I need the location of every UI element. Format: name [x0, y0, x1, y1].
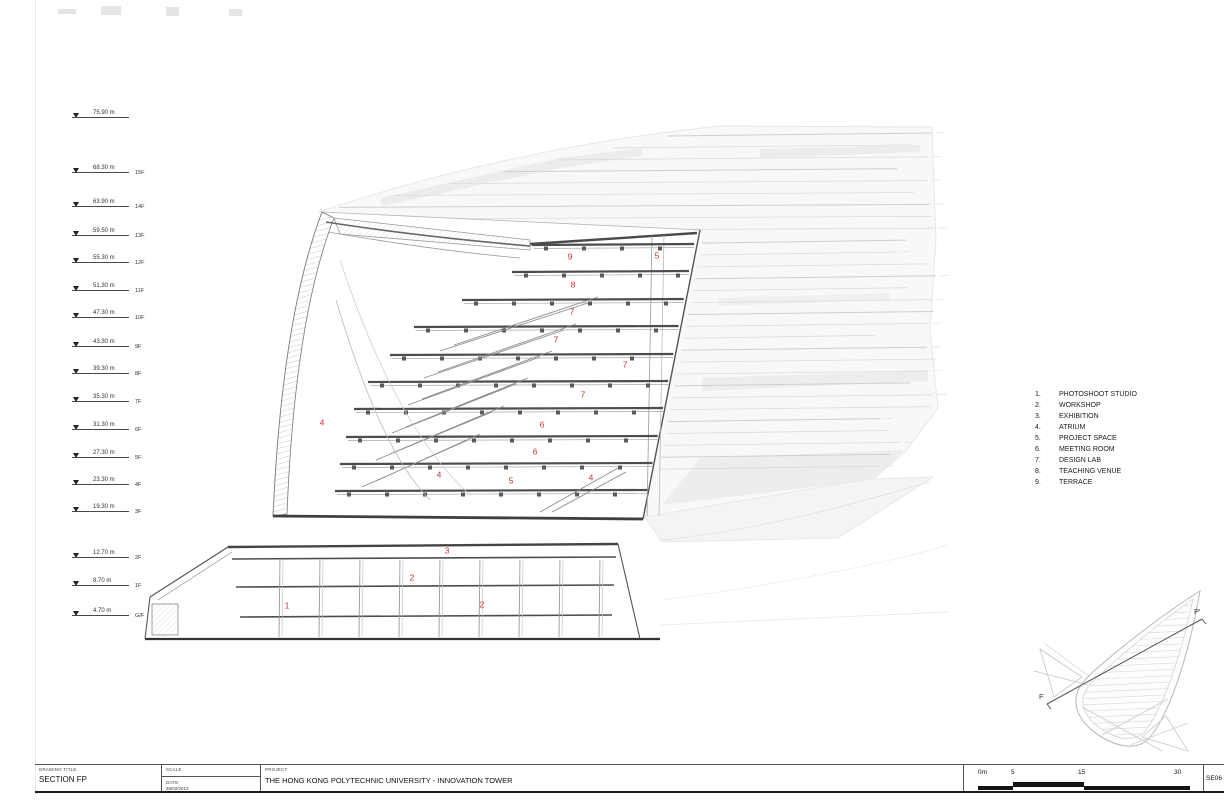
section-line-start-label: F	[1039, 692, 1044, 701]
legend-item-label: TEACHING VENUE	[1059, 466, 1121, 477]
legend-item-label: ATRIUM	[1059, 422, 1085, 433]
level-marker: 27.30 m5F	[72, 448, 129, 458]
level-marker: 51.30 m11F	[72, 281, 129, 291]
scale-bar-labels: 0m51530	[978, 769, 1192, 777]
podium-section	[145, 544, 660, 639]
level-floor-label: 6F	[135, 427, 141, 433]
space-number-label: 7	[554, 336, 559, 345]
level-elevation: 19.30 m	[93, 504, 115, 510]
legend-item-label: PROJECT SPACE	[1059, 433, 1117, 444]
scale-bar-segment	[1013, 782, 1084, 786]
space-number-label: 3	[445, 547, 450, 556]
level-floor-label: G/F	[135, 613, 144, 619]
legend-item-label: WORKSHOP	[1059, 400, 1101, 411]
project-name: THE HONG KONG POLYTECHNIC UNIVERSITY - I…	[261, 772, 963, 785]
level-triangle-icon	[73, 425, 79, 430]
section-cut	[273, 212, 700, 519]
legend-item-number: 6.	[1035, 444, 1059, 455]
level-triangle-icon	[73, 113, 79, 118]
space-number-label: 7	[623, 361, 628, 370]
legend-item-label: MEETING ROOM	[1059, 444, 1115, 455]
level-triangle-icon	[73, 397, 79, 402]
level-elevation: 4.70 m	[93, 608, 111, 614]
room-legend: 1.PHOTOSHOOT STUDIO2.WORKSHOP3.EXHIBITIO…	[1035, 389, 1165, 488]
level-floor-label: 14F	[135, 204, 144, 210]
level-marker: 12.70 m2F	[72, 548, 129, 558]
level-marker: 4.70 mG/F	[72, 606, 129, 616]
level-marker: 59.50 m13F	[72, 226, 129, 236]
legend-item-label: DESIGN LAB	[1059, 455, 1101, 466]
level-floor-label: 10F	[135, 315, 144, 321]
title-block-scale-date-cell: SCALE DATE 26/02/2013	[161, 765, 260, 791]
level-elevation: 35.30 m	[93, 394, 115, 400]
legend-item: 8.TEACHING VENUE	[1035, 466, 1165, 477]
legend-item: 6.MEETING ROOM	[1035, 444, 1165, 455]
legend-item: 7.DESIGN LAB	[1035, 455, 1165, 466]
legend-item: 1.PHOTOSHOOT STUDIO	[1035, 389, 1165, 400]
level-triangle-icon	[73, 286, 79, 291]
space-number-label: 9	[568, 253, 573, 262]
level-triangle-icon	[73, 611, 79, 616]
scale-bar-segment	[1084, 786, 1190, 790]
level-elevation: 31.30 m	[93, 422, 115, 428]
level-marker: 31.30 m6F	[72, 420, 129, 430]
key-plan-building-outline	[1034, 591, 1205, 751]
space-number-label: 7	[581, 391, 586, 400]
level-elevation: 55.30 m	[93, 255, 115, 261]
level-triangle-icon	[73, 258, 79, 263]
level-marker: 43.30 m9F	[72, 337, 129, 347]
level-triangle-icon	[73, 202, 79, 207]
level-marker: 55.30 m12F	[72, 253, 129, 263]
title-block-drawing-title-cell: DRAWING TITLE SECTION FP	[35, 765, 161, 791]
legend-item: 3.EXHIBITION	[1035, 411, 1165, 422]
level-triangle-icon	[73, 581, 79, 586]
legend-item-number: 5.	[1035, 433, 1059, 444]
space-number-label: 6	[540, 421, 545, 430]
date-label: DATE	[162, 778, 260, 785]
level-marker: 68.30 m15F	[72, 163, 129, 173]
scale-bar-unit-label: 15	[1078, 769, 1085, 776]
level-floor-label: 3F	[135, 509, 141, 515]
legend-item-number: 9.	[1035, 477, 1059, 488]
level-elevation: 47.30 m	[93, 310, 115, 316]
legend-item: 4.ATRIUM	[1035, 422, 1165, 433]
legend-item-number: 7.	[1035, 455, 1059, 466]
space-number-label: 2	[480, 601, 485, 610]
level-marker: 75.90 m	[72, 108, 129, 118]
scale-bar-unit-label: 0m	[978, 769, 987, 776]
scale-bar	[978, 781, 1190, 791]
space-number-label: 7	[570, 308, 575, 317]
space-number-label: 2	[410, 574, 415, 583]
drawing-sheet: 75.90 m68.30 m15F63.90 m14F59.50 m13F55.…	[0, 0, 1227, 800]
space-number-label: 1	[285, 602, 290, 611]
level-elevation: 63.90 m	[93, 199, 115, 205]
level-triangle-icon	[73, 453, 79, 458]
drawing-title: SECTION FP	[35, 772, 161, 784]
legend-item-label: EXHIBITION	[1059, 411, 1099, 422]
key-plan: F P'	[1030, 585, 1220, 755]
print-artifact-marks	[58, 6, 242, 16]
legend-item: 5.PROJECT SPACE	[1035, 433, 1165, 444]
space-number-label: 5	[655, 252, 660, 261]
space-number-label: 4	[589, 474, 594, 483]
level-triangle-icon	[73, 168, 79, 173]
level-elevation: 43.30 m	[93, 339, 115, 345]
level-elevation: 8.70 m	[93, 578, 111, 584]
legend-item-number: 1.	[1035, 389, 1059, 400]
level-elevation: 27.30 m	[93, 450, 115, 456]
level-triangle-icon	[73, 231, 79, 236]
level-floor-label: 2F	[135, 555, 141, 561]
level-floor-label: 15F	[135, 170, 144, 176]
level-floor-label: 9F	[135, 344, 141, 350]
level-elevation: 23.30 m	[93, 477, 115, 483]
level-elevation: 12.70 m	[93, 550, 115, 556]
level-triangle-icon	[73, 369, 79, 374]
date-value: 26/02/2013	[162, 785, 260, 791]
space-number-label: 5	[509, 477, 514, 486]
legend-item-number: 3.	[1035, 411, 1059, 422]
level-marker: 19.30 m3F	[72, 502, 129, 512]
space-number-label: 8	[571, 281, 576, 290]
section-line-end-label: P'	[1194, 607, 1201, 616]
legend-item: 9.TERRACE	[1035, 477, 1165, 488]
legend-item-label: PHOTOSHOOT STUDIO	[1059, 389, 1137, 400]
legend-item-number: 8.	[1035, 466, 1059, 477]
level-marker: 23.30 m4F	[72, 475, 129, 485]
level-floor-label: 4F	[135, 482, 141, 488]
space-number-label: 4	[437, 471, 442, 480]
level-elevation: 75.90 m	[93, 110, 115, 116]
space-number-label: 4	[320, 419, 325, 428]
scale-bar-unit-label: 30	[1174, 769, 1181, 776]
level-floor-label: 5F	[135, 455, 141, 461]
scale-label: SCALE	[162, 765, 260, 772]
level-floor-label: 8F	[135, 371, 141, 377]
level-floor-label: 7F	[135, 399, 141, 405]
project-label: PROJECT	[261, 765, 963, 772]
scale-bar-segment	[978, 786, 1013, 790]
level-triangle-icon	[73, 313, 79, 318]
level-floor-label: 13F	[135, 233, 144, 239]
level-marker: 8.70 m1F	[72, 576, 129, 586]
level-elevation: 39.30 m	[93, 366, 115, 372]
scale-bar-unit-label: 5	[1011, 769, 1015, 776]
sheet-number: SE06	[1204, 765, 1224, 791]
level-marker: 39.30 m8F	[72, 364, 129, 374]
level-floor-label: 11F	[135, 288, 144, 294]
level-triangle-icon	[73, 480, 79, 485]
level-elevation: 59.50 m	[93, 228, 115, 234]
space-number-label: 6	[533, 448, 538, 457]
level-elevation: 68.30 m	[93, 165, 115, 171]
title-block-project-cell: PROJECT THE HONG KONG POLYTECHNIC UNIVER…	[260, 765, 963, 791]
legend-item-number: 2.	[1035, 400, 1059, 411]
level-elevation: 51.30 m	[93, 283, 115, 289]
level-triangle-icon	[73, 507, 79, 512]
drawing-title-label: DRAWING TITLE	[35, 765, 161, 772]
level-triangle-icon	[73, 342, 79, 347]
level-marker: 63.90 m14F	[72, 197, 129, 207]
level-marker: 47.30 m10F	[72, 308, 129, 318]
legend-item-number: 4.	[1035, 422, 1059, 433]
level-triangle-icon	[73, 553, 79, 558]
title-block-sheet-number-cell: SE06	[1203, 765, 1224, 791]
level-marker: 35.30 m7F	[72, 392, 129, 402]
level-floor-label: 12F	[135, 260, 144, 266]
legend-item: 2.WORKSHOP	[1035, 400, 1165, 411]
level-floor-label: 1F	[135, 583, 141, 589]
legend-item-label: TERRACE	[1059, 477, 1092, 488]
